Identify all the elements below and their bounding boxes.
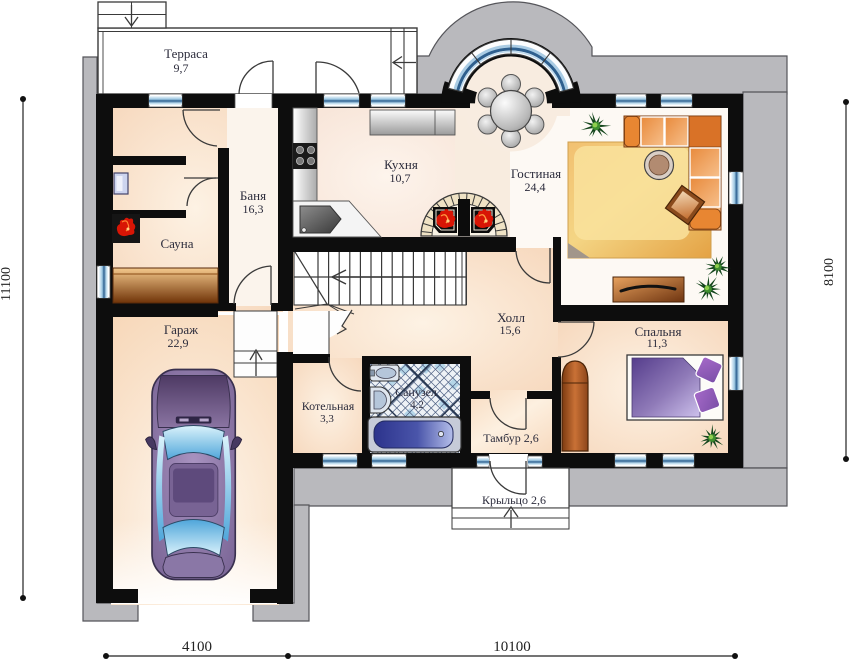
svg-text:Сауна: Сауна <box>160 236 193 251</box>
svg-text:8100: 8100 <box>822 258 837 286</box>
svg-text:24,4: 24,4 <box>525 180 546 194</box>
svg-text:11100: 11100 <box>0 267 14 301</box>
svg-text:4100: 4100 <box>182 639 212 655</box>
svg-text:10100: 10100 <box>493 639 531 655</box>
svg-text:3,3: 3,3 <box>320 413 334 425</box>
svg-text:9,7: 9,7 <box>174 61 189 75</box>
svg-text:Баня: Баня <box>240 188 266 203</box>
svg-text:Гараж: Гараж <box>164 322 199 337</box>
svg-text:Тамбур 2,6: Тамбур 2,6 <box>483 431 539 445</box>
svg-text:Терраса: Терраса <box>164 46 208 61</box>
svg-text:Гостиная: Гостиная <box>511 166 561 181</box>
svg-text:Котельная: Котельная <box>302 399 355 413</box>
svg-text:4,2: 4,2 <box>410 399 424 411</box>
svg-text:10,7: 10,7 <box>390 171 411 185</box>
svg-text:Кухня: Кухня <box>384 157 418 172</box>
svg-text:Санузел: Санузел <box>395 385 437 399</box>
svg-text:11,3: 11,3 <box>647 336 668 350</box>
svg-text:15,6: 15,6 <box>500 323 521 337</box>
svg-text:16,3: 16,3 <box>243 202 264 216</box>
svg-text:22,9: 22,9 <box>168 336 189 350</box>
svg-text:Крыльцо 2,6: Крыльцо 2,6 <box>482 493 546 507</box>
